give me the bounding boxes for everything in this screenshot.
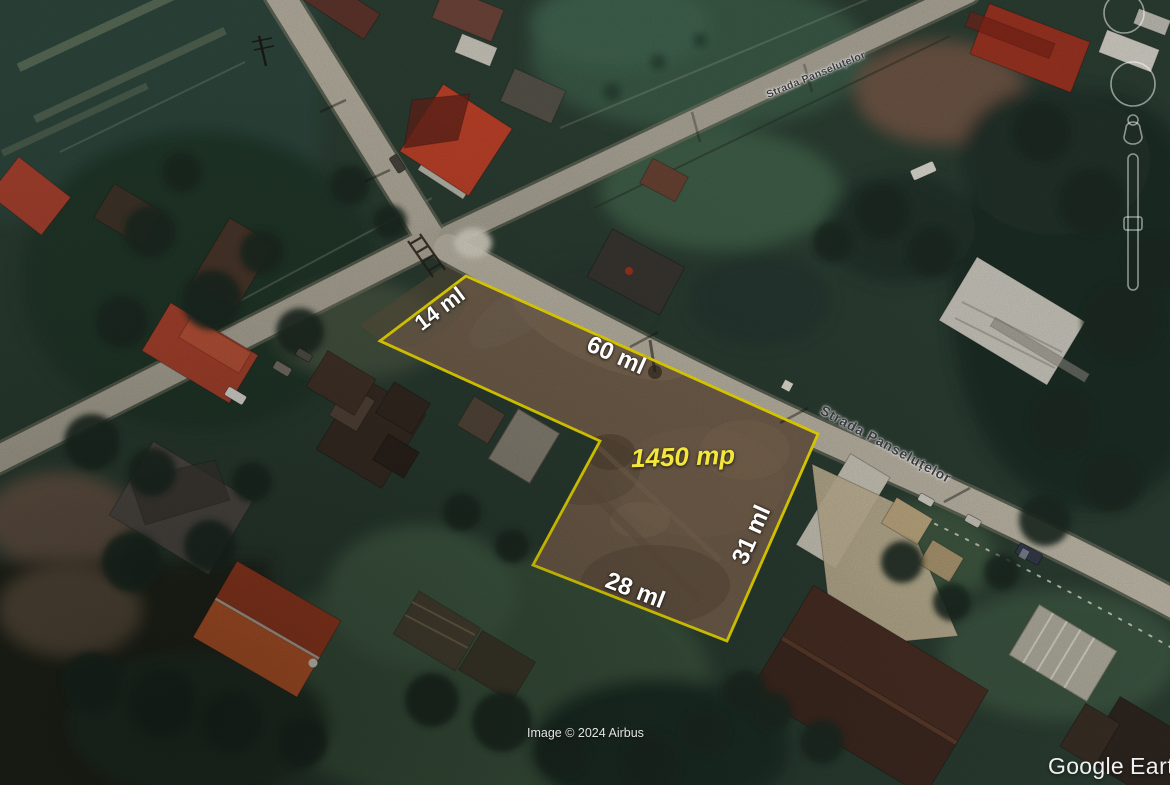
vignette (0, 0, 1170, 785)
map-viewport[interactable]: 14 ml 60 ml 1450 mp 31 ml 28 ml Strada P… (0, 0, 1170, 785)
satellite-imagery (0, 0, 1170, 785)
